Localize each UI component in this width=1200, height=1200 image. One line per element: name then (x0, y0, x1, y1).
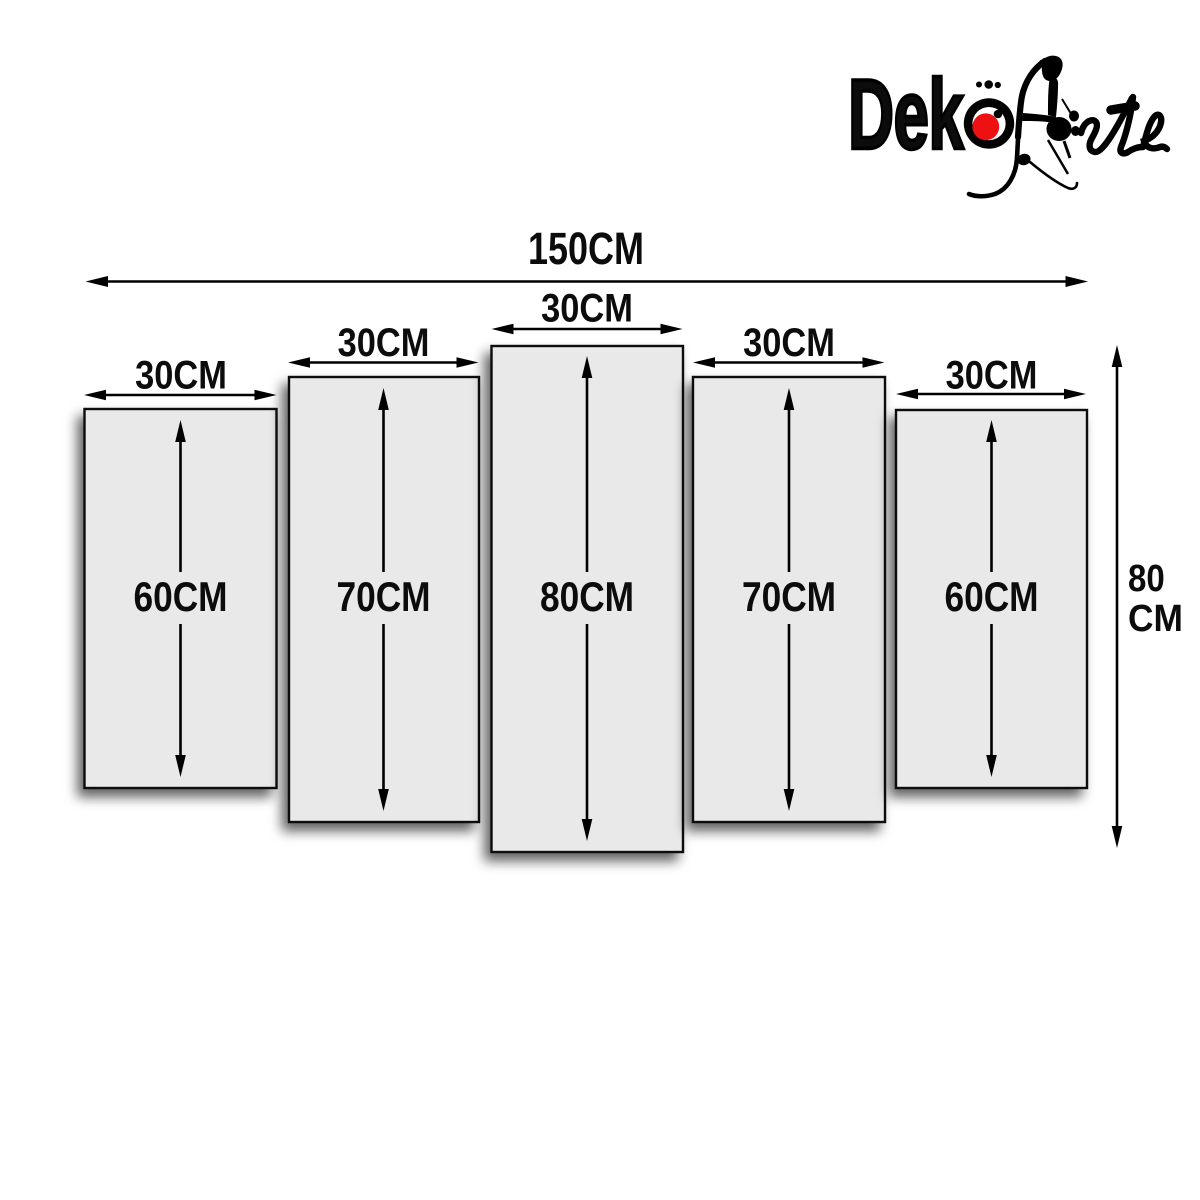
svg-text:30CM: 30CM (541, 285, 633, 330)
svg-text:30CM: 30CM (338, 320, 430, 365)
svg-text:30CM: 30CM (135, 352, 227, 397)
svg-text:80: 80 (1128, 557, 1165, 600)
svg-text:70CM: 70CM (742, 574, 836, 621)
svg-text:70CM: 70CM (336, 574, 430, 621)
svg-text:Dek: Dek (848, 59, 964, 170)
svg-text:CM: CM (1128, 597, 1183, 639)
svg-text:30CM: 30CM (743, 320, 835, 365)
svg-text:30CM: 30CM (946, 352, 1038, 397)
svg-text:150CM: 150CM (528, 223, 644, 274)
svg-text:80CM: 80CM (540, 574, 634, 621)
svg-text:60CM: 60CM (133, 574, 227, 621)
svg-text:60CM: 60CM (944, 574, 1038, 621)
